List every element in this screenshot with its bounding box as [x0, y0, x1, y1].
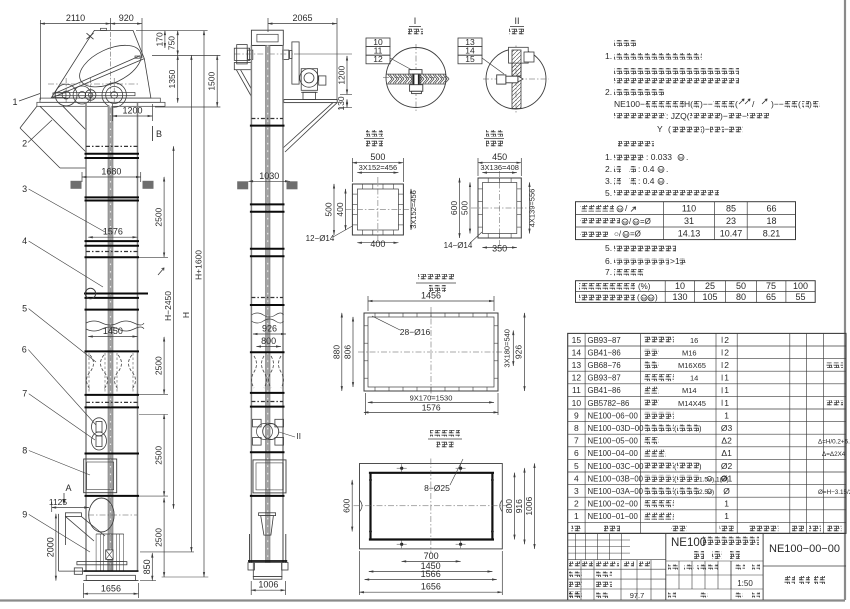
svg-text:NE100−02−00: NE100−02−00 [588, 500, 639, 509]
svg-text:−: − [742, 111, 747, 121]
svg-text:23: 23 [726, 216, 736, 226]
svg-text:2500: 2500 [154, 207, 164, 226]
svg-text:GB93−87: GB93−87 [588, 336, 621, 345]
svg-text:6: 6 [22, 345, 27, 355]
svg-text:−: − [724, 124, 729, 134]
svg-text:Ø2: Ø2 [721, 461, 733, 471]
svg-text:: 0.4: : 0.4 [638, 176, 655, 186]
svg-text:15: 15 [572, 335, 582, 345]
svg-text:806: 806 [343, 345, 353, 359]
svg-text:1: 1 [724, 373, 729, 383]
svg-text:2.: 2. [605, 164, 612, 174]
svg-text:M: M [659, 167, 663, 173]
svg-text:(: ( [668, 124, 671, 134]
svg-text:H−2450: H−2450 [163, 291, 173, 321]
svg-text:NE100−03B−00: NE100−03B−00 [588, 474, 644, 483]
svg-text:12: 12 [373, 54, 383, 64]
svg-text:350: 350 [492, 244, 507, 254]
svg-text:1576: 1576 [422, 403, 441, 413]
svg-text:85: 85 [726, 204, 736, 214]
svg-text:3X152=456: 3X152=456 [359, 163, 398, 172]
svg-text:): ) [712, 489, 714, 496]
svg-text:3X136=408: 3X136=408 [480, 163, 519, 172]
svg-text:1566: 1566 [421, 569, 441, 579]
svg-text:2500: 2500 [154, 356, 164, 375]
svg-text:GB68−76: GB68−76 [588, 361, 621, 370]
svg-text:10: 10 [572, 398, 582, 408]
svg-text:NE100−03D−00: NE100−03D−00 [588, 424, 645, 433]
svg-text:1: 1 [724, 398, 729, 408]
svg-text:4: 4 [22, 236, 27, 246]
svg-text:>1: >1 [670, 256, 680, 266]
svg-text:2: 2 [724, 360, 729, 370]
svg-text:1006: 1006 [524, 496, 534, 515]
svg-text:(: ( [735, 99, 738, 109]
svg-text:M16: M16 [682, 348, 697, 357]
svg-text:)−−: )−− [771, 99, 784, 109]
svg-text:1: 1 [724, 499, 729, 509]
svg-text:9X170=1530: 9X170=1530 [410, 393, 453, 402]
svg-text:NE100−−: NE100−− [614, 99, 650, 109]
svg-text:5: 5 [22, 304, 27, 314]
svg-text:GB41−86: GB41−86 [588, 348, 621, 357]
svg-text:NE100−06−00: NE100−06−00 [588, 411, 639, 420]
svg-text:NE100−01−00: NE100−01−00 [588, 512, 639, 521]
svg-text:M: M [623, 220, 627, 226]
svg-text:500: 500 [324, 202, 334, 216]
svg-text:(%): (%) [638, 282, 651, 291]
svg-text:130: 130 [336, 96, 346, 110]
svg-text:.: . [666, 164, 668, 174]
svg-text:M16X65: M16X65 [678, 361, 706, 370]
svg-text:880: 880 [331, 345, 341, 359]
svg-text:12: 12 [572, 373, 582, 383]
svg-text:14: 14 [572, 347, 582, 357]
svg-text:500: 500 [370, 152, 385, 162]
svg-text:15: 15 [465, 54, 475, 64]
svg-text:80: 80 [736, 292, 746, 302]
svg-text:Ø1: Ø1 [721, 473, 733, 483]
svg-text:M: M [624, 232, 628, 238]
svg-text:6.: 6. [605, 256, 612, 266]
svg-text:II: II [514, 16, 519, 26]
svg-text:1: 1 [12, 97, 17, 107]
svg-text:66: 66 [766, 204, 776, 214]
svg-text:1:50: 1:50 [737, 579, 753, 588]
svg-text:31: 31 [684, 216, 694, 226]
svg-text:1: 1 [574, 511, 579, 521]
svg-text:1030: 1030 [259, 171, 279, 181]
svg-text:=Ø: =Ø [630, 230, 641, 239]
svg-text:8−Ø25: 8−Ø25 [424, 483, 450, 493]
svg-text:5.: 5. [605, 188, 612, 198]
svg-text:2500: 2500 [154, 528, 164, 547]
svg-text:M: M [649, 296, 653, 302]
svg-text:14.13: 14.13 [678, 229, 701, 239]
svg-text:H: H [181, 312, 191, 318]
svg-text:3X180=540: 3X180=540 [502, 329, 511, 368]
svg-text:NE100−00−00: NE100−00−00 [769, 543, 840, 555]
svg-text:1456: 1456 [421, 291, 441, 301]
svg-text:7.: 7. [605, 267, 612, 277]
svg-text:Ø=H−3.15/2.5: Ø=H−3.15/2.5 [818, 489, 850, 496]
svg-text:8.21: 8.21 [763, 229, 781, 239]
svg-text:10.47: 10.47 [720, 229, 743, 239]
svg-text:M: M [618, 207, 622, 213]
svg-text:8: 8 [574, 423, 579, 433]
svg-text:1200: 1200 [337, 65, 347, 84]
svg-text:Δ2: Δ2 [721, 436, 732, 446]
svg-text:1200: 1200 [122, 106, 142, 116]
svg-text:H(: H( [684, 99, 693, 109]
svg-text:M: M [634, 220, 638, 226]
svg-text:14−Ø14: 14−Ø14 [444, 241, 473, 250]
svg-text:2110: 2110 [66, 13, 85, 23]
svg-text:NE100−05−00: NE100−05−00 [588, 437, 639, 446]
svg-text:H+1600: H+1600 [194, 250, 204, 280]
svg-text:3.: 3. [605, 176, 612, 186]
svg-text:GB93−87: GB93−87 [588, 374, 621, 383]
svg-text:1: 1 [724, 410, 729, 420]
svg-text:II: II [296, 432, 300, 441]
svg-text:2.: 2. [605, 87, 612, 97]
svg-text:3X152=456: 3X152=456 [409, 190, 418, 229]
svg-text:10: 10 [675, 281, 685, 291]
svg-text:25: 25 [705, 281, 715, 291]
svg-text:9: 9 [22, 509, 27, 519]
svg-text:5.: 5. [605, 243, 612, 253]
svg-text:600: 600 [449, 201, 459, 215]
svg-text:800: 800 [261, 336, 276, 346]
svg-text:1: 1 [724, 511, 729, 521]
svg-text:: 0.033: : 0.033 [646, 152, 672, 162]
svg-text:)−: )− [720, 111, 728, 121]
svg-text:3: 3 [574, 486, 579, 496]
svg-text:5: 5 [574, 461, 579, 471]
svg-text:NE100−03A−00: NE100−03A−00 [588, 487, 644, 496]
svg-text:8: 8 [22, 446, 27, 456]
svg-text:1.: 1. [605, 152, 612, 162]
svg-text:14: 14 [690, 374, 698, 383]
svg-text:): ) [809, 99, 812, 109]
svg-text:NE100: NE100 [671, 537, 706, 549]
svg-text:(: ( [798, 99, 801, 109]
svg-text:16: 16 [690, 336, 698, 345]
svg-text:1.: 1. [605, 51, 612, 61]
svg-text:: 0.4: : 0.4 [638, 164, 655, 174]
svg-text:1450: 1450 [103, 326, 123, 336]
svg-text:I: I [414, 16, 417, 26]
svg-text:55: 55 [795, 292, 805, 302]
svg-text:920: 920 [119, 13, 134, 23]
svg-text:13: 13 [572, 360, 582, 370]
svg-text:7: 7 [22, 389, 27, 399]
svg-text:400: 400 [370, 239, 385, 249]
svg-text:2065: 2065 [292, 13, 312, 23]
svg-text:850: 850 [142, 559, 152, 574]
svg-text:M14X45: M14X45 [678, 399, 706, 408]
svg-text:)−−: )−− [700, 99, 713, 109]
svg-text:M: M [642, 296, 646, 302]
svg-text:○/: ○/ [614, 230, 622, 239]
svg-text:800: 800 [504, 499, 514, 513]
svg-text:1350: 1350 [167, 69, 177, 88]
svg-text:): ) [655, 293, 658, 302]
svg-text:.: . [686, 152, 688, 162]
svg-text:GB41−86: GB41−86 [588, 386, 621, 395]
svg-text:M: M [679, 155, 683, 161]
svg-text:28−Ø16: 28−Ø16 [400, 327, 431, 337]
svg-text:926: 926 [514, 345, 524, 359]
svg-text:500: 500 [460, 201, 470, 215]
svg-text:11: 11 [572, 385, 581, 395]
svg-text:)−: )− [702, 124, 710, 134]
svg-text:=Ø: =Ø [640, 217, 651, 226]
svg-text:600: 600 [342, 498, 352, 512]
svg-text:2000: 2000 [45, 537, 55, 557]
svg-text:916: 916 [514, 499, 524, 513]
svg-text:97.7: 97.7 [630, 591, 645, 600]
svg-text:Ø: Ø [723, 486, 730, 496]
svg-text:Δ1: Δ1 [721, 448, 732, 458]
svg-text:Δ=Δ2X4: Δ=Δ2X4 [822, 451, 846, 458]
svg-text:Δ=H/0.2+5.75: Δ=H/0.2+5.75 [818, 439, 850, 446]
svg-text:.: . [666, 176, 668, 186]
svg-text:700: 700 [424, 551, 439, 561]
svg-text:100: 100 [793, 281, 808, 291]
svg-text:400: 400 [335, 202, 345, 216]
svg-text:75: 75 [766, 281, 776, 291]
svg-text:18: 18 [766, 216, 776, 226]
svg-text:A: A [65, 483, 71, 493]
svg-text:1: 1 [724, 385, 729, 395]
svg-text:Y: Y [657, 124, 663, 134]
svg-text:2: 2 [724, 347, 729, 357]
svg-text:2: 2 [22, 139, 27, 149]
svg-text:750: 750 [167, 36, 177, 50]
svg-text:B: B [156, 129, 162, 139]
svg-text:NE100−04−00: NE100−04−00 [588, 449, 639, 458]
svg-text:GB5782−86: GB5782−86 [588, 399, 630, 408]
svg-text:(: ( [637, 293, 640, 302]
svg-text:105: 105 [702, 292, 717, 302]
svg-text:1500: 1500 [207, 71, 217, 90]
svg-text:7: 7 [574, 436, 579, 446]
svg-text:3: 3 [22, 184, 27, 194]
svg-text:110: 110 [682, 204, 696, 214]
svg-text:1576: 1576 [103, 227, 123, 237]
svg-text:450: 450 [492, 152, 507, 162]
svg-text:NE100−03C−00: NE100−03C−00 [588, 462, 645, 471]
svg-text:2500: 2500 [154, 446, 164, 465]
svg-text:6: 6 [574, 448, 579, 458]
svg-text:9: 9 [574, 410, 579, 420]
svg-text:M14: M14 [682, 386, 697, 395]
svg-text:12−Ø14: 12−Ø14 [306, 234, 335, 243]
svg-text:1656: 1656 [101, 583, 121, 593]
svg-text:: JZQ(: : JZQ( [666, 111, 690, 121]
svg-text:1680: 1680 [101, 167, 121, 177]
svg-text:926: 926 [262, 324, 277, 334]
svg-text:M: M [659, 179, 663, 185]
svg-text:1656: 1656 [421, 582, 441, 592]
svg-text:170: 170 [154, 32, 164, 46]
svg-text:50: 50 [736, 281, 746, 291]
svg-text:Ø3: Ø3 [721, 423, 733, 433]
svg-text:4X139=556: 4X139=556 [528, 189, 537, 228]
svg-text:130: 130 [672, 292, 687, 302]
svg-text:4: 4 [574, 473, 579, 483]
svg-text:2: 2 [574, 499, 579, 509]
svg-text:1006: 1006 [258, 580, 278, 590]
svg-text:65: 65 [766, 292, 776, 302]
svg-text:2: 2 [724, 335, 729, 345]
